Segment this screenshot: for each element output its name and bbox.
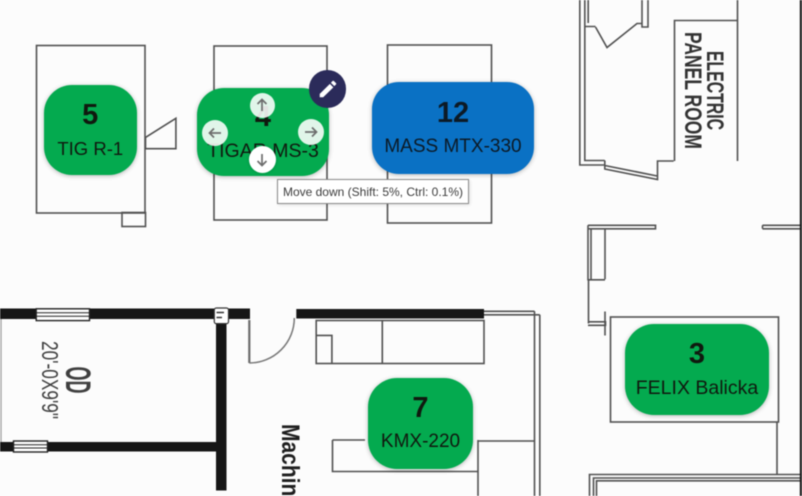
svg-text:20'-0X9'9": 20'-0X9'9"	[37, 341, 63, 419]
svg-text:Machine: Machine	[276, 424, 304, 496]
svg-text:PANEL ROOM: PANEL ROOM	[679, 32, 706, 149]
